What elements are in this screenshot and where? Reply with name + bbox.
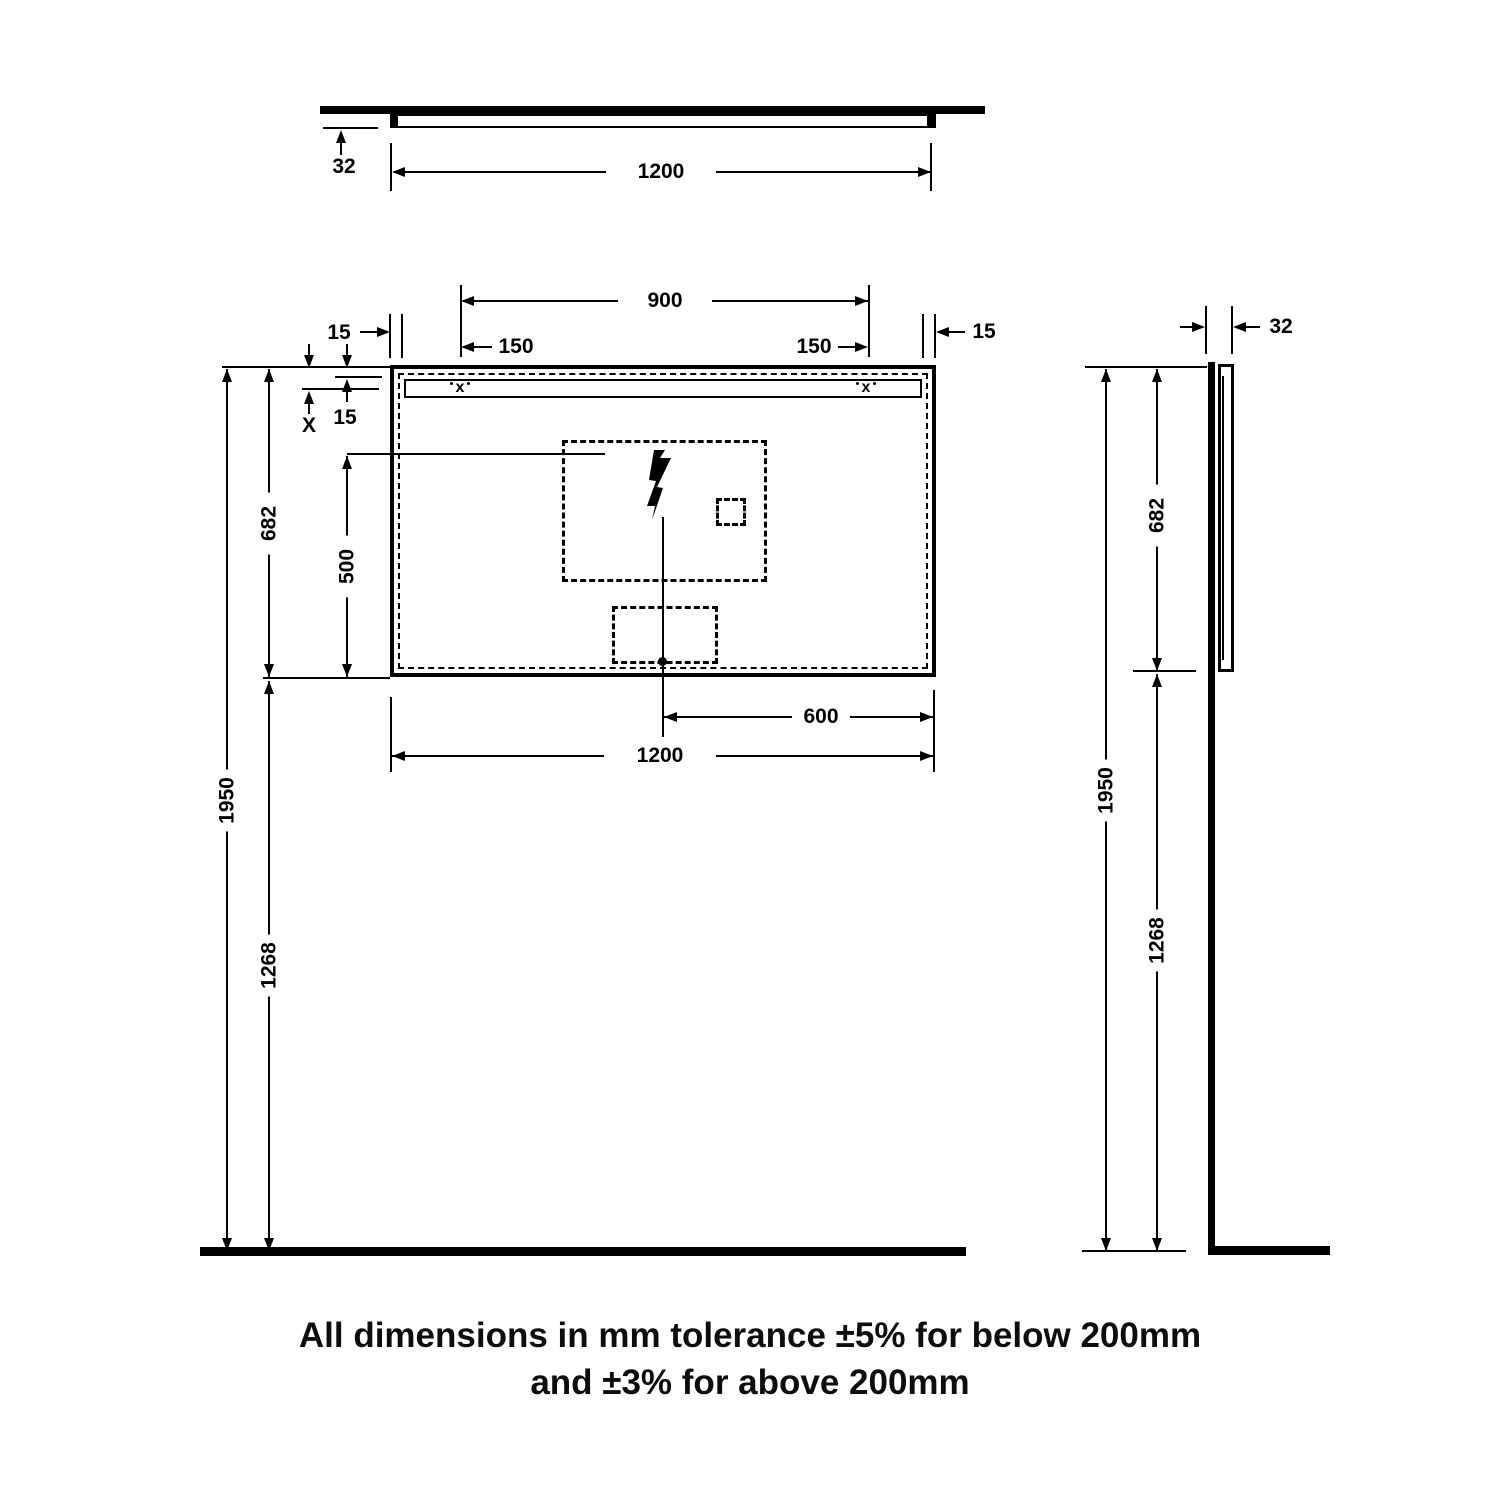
label-side-total-height: 1950 bbox=[1095, 760, 1118, 822]
extension-tick bbox=[1205, 306, 1207, 354]
dimension-line bbox=[1246, 326, 1260, 328]
arrowhead-up bbox=[1152, 369, 1162, 382]
arrowhead-down bbox=[1152, 658, 1162, 671]
arrowhead-down bbox=[1101, 1238, 1111, 1251]
arrowhead-up bbox=[1152, 674, 1162, 687]
tolerance-note-line2: and ±3% for above 200mm bbox=[150, 1359, 1350, 1406]
floor-line-side-view bbox=[1208, 1246, 1330, 1255]
extension-line-mirror-bottom bbox=[1133, 670, 1196, 672]
extension-line-mirror-top bbox=[1085, 366, 1207, 368]
label-side-lower-height: 1268 bbox=[1146, 910, 1169, 972]
arrowhead-up bbox=[1101, 369, 1111, 382]
arrowhead-right bbox=[1192, 322, 1205, 332]
technical-drawing: 32 1200 x x bbox=[0, 0, 1500, 1500]
extension-line-floor bbox=[1082, 1250, 1186, 1252]
mirror-profile-inner-line bbox=[1222, 376, 1224, 660]
arrowhead-down bbox=[1152, 1238, 1162, 1251]
tolerance-note-line1: All dimensions in mm tolerance ±5% for b… bbox=[150, 1312, 1350, 1359]
tolerance-note: All dimensions in mm tolerance ±5% for b… bbox=[150, 1312, 1350, 1406]
side-view: 32 682 1950 1268 bbox=[0, 0, 1500, 1500]
label-side-height: 682 bbox=[1146, 485, 1169, 547]
wall-line-side-view bbox=[1208, 362, 1215, 1248]
arrowhead-left bbox=[1233, 322, 1246, 332]
label-side-depth: 32 bbox=[1262, 315, 1300, 338]
mirror-profile-side-view bbox=[1218, 364, 1234, 672]
